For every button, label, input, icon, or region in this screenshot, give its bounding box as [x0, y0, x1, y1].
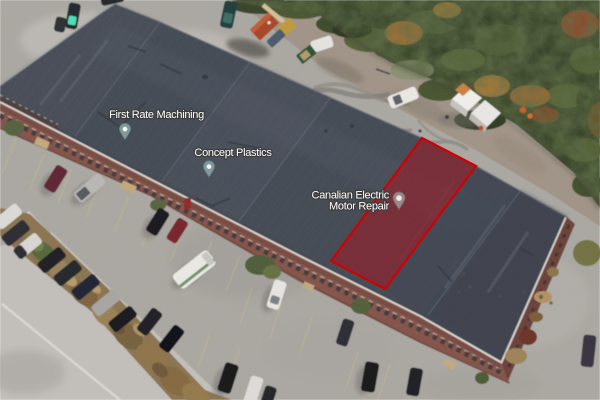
svg-text:First Rate Machining: First Rate Machining: [109, 109, 204, 121]
svg-text:Motor Repair: Motor Repair: [329, 201, 390, 213]
svg-text:Concept Plastics: Concept Plastics: [194, 147, 272, 159]
